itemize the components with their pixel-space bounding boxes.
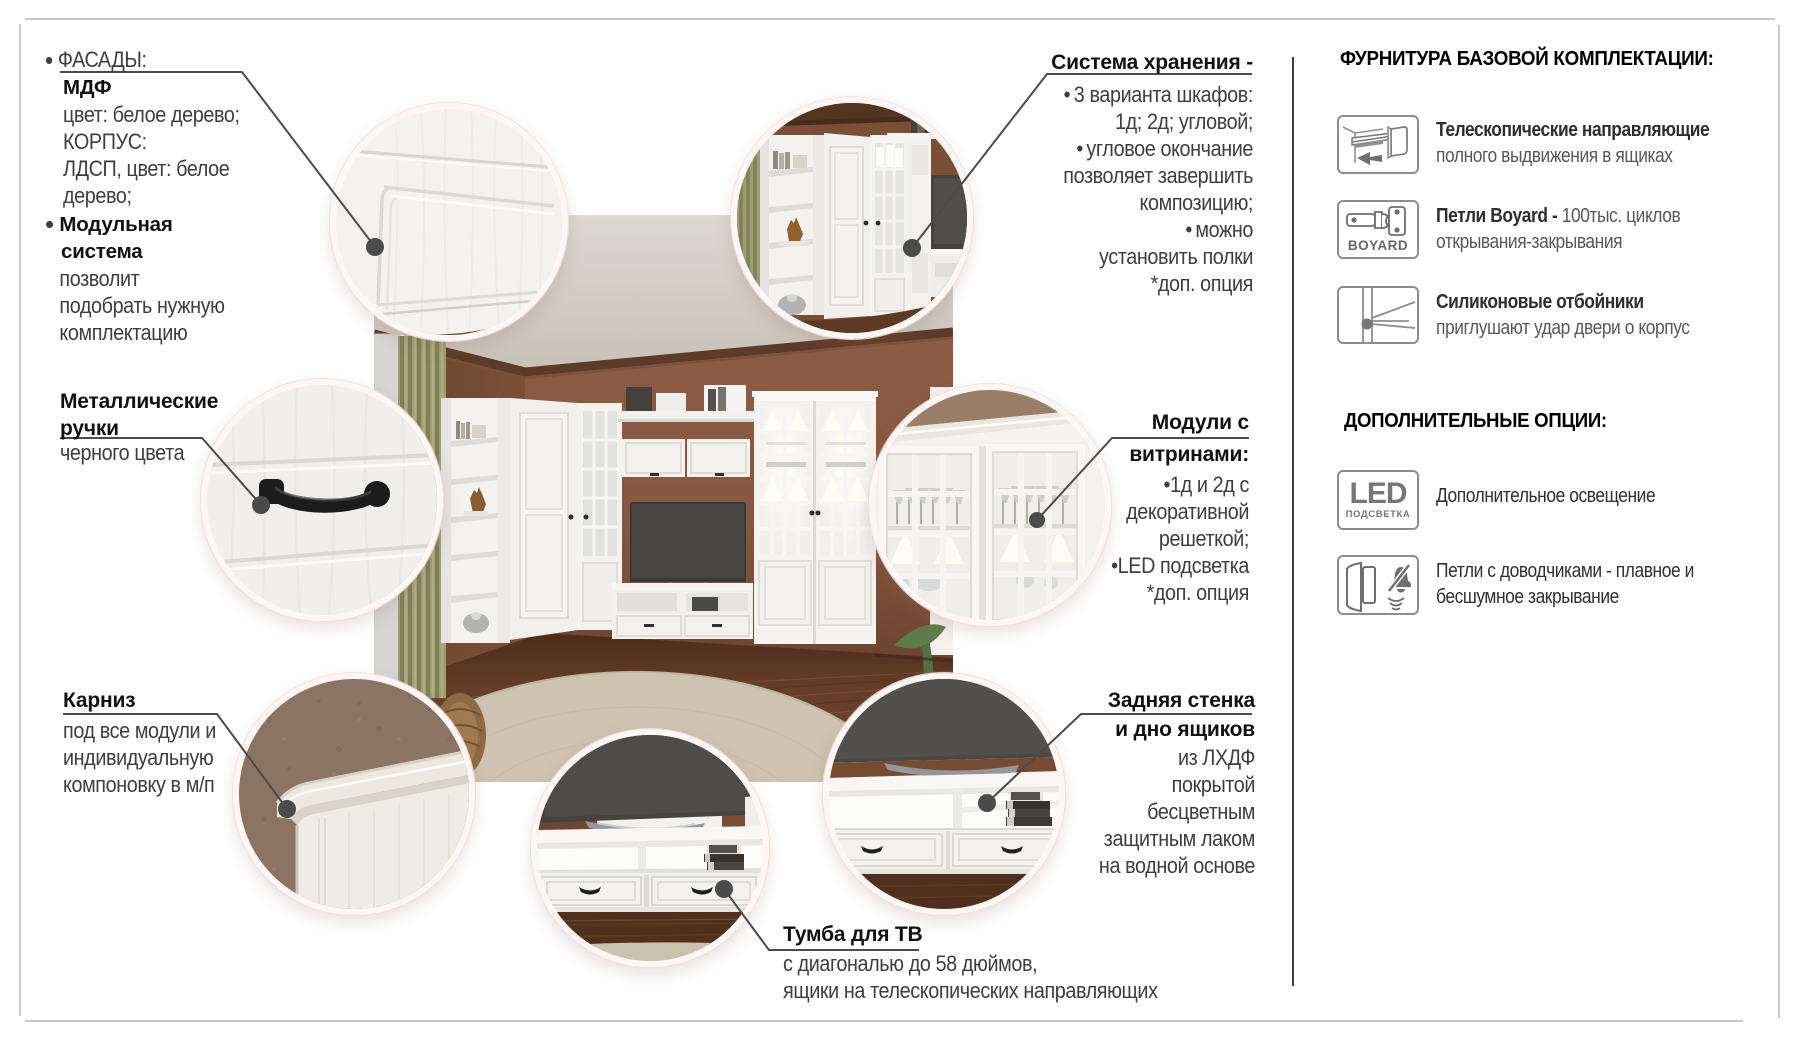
- svg-text:LED: LED: [1350, 477, 1407, 510]
- svg-text:BOYARD: BOYARD: [1348, 238, 1408, 253]
- svg-text:ПОДСВЕТКА: ПОДСВЕТКА: [1346, 509, 1411, 520]
